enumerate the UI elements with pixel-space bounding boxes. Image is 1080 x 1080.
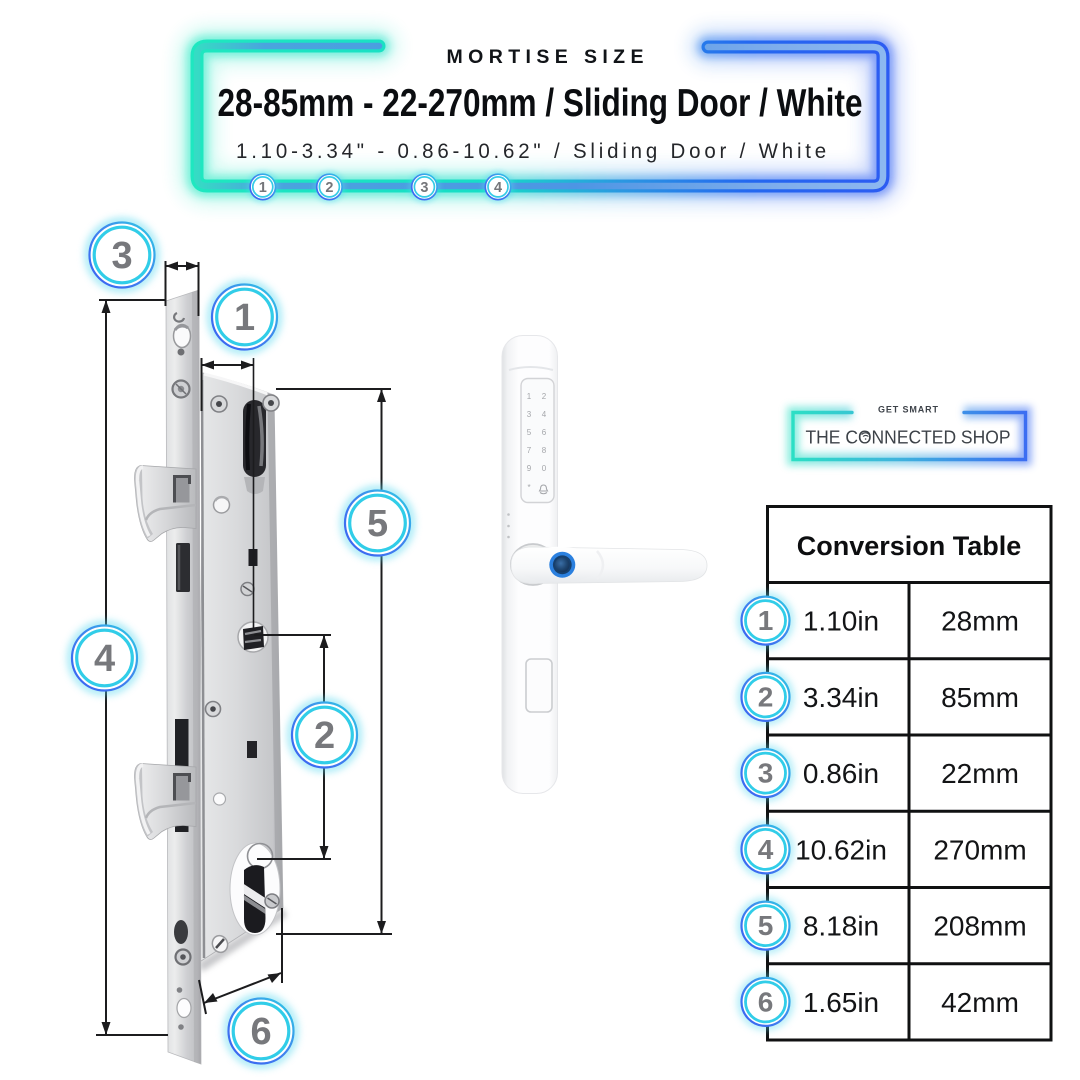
svg-text:1.10in: 1.10in [803, 606, 879, 637]
svg-text:28mm: 28mm [941, 606, 1019, 637]
svg-text:THE CONNECTED SHOP: THE CONNECTED SHOP [806, 427, 1011, 448]
svg-text:3: 3 [758, 758, 774, 789]
svg-text:MORTISE SIZE: MORTISE SIZE [447, 46, 644, 68]
svg-text:4: 4 [758, 834, 774, 865]
svg-text:2: 2 [325, 180, 333, 196]
svg-text:1: 1 [259, 180, 267, 196]
svg-text:5: 5 [367, 503, 388, 545]
svg-text:10.62in: 10.62in [795, 834, 887, 865]
svg-text:2: 2 [314, 715, 335, 757]
svg-text:6: 6 [758, 986, 774, 1017]
svg-text:4: 4 [94, 638, 115, 680]
svg-text:2: 2 [542, 392, 547, 401]
svg-text:9: 9 [527, 464, 532, 473]
svg-text:4: 4 [542, 410, 547, 419]
svg-text:2: 2 [758, 681, 774, 712]
svg-text:4: 4 [494, 180, 502, 196]
svg-text:42mm: 42mm [941, 987, 1019, 1018]
svg-text:*: * [527, 483, 530, 492]
svg-text:1.10-3.34" - 0.86-10.62" / Sli: 1.10-3.34" - 0.86-10.62" / Sliding Door … [236, 139, 830, 163]
svg-text:3.34in: 3.34in [803, 682, 879, 713]
svg-text:1: 1 [758, 605, 774, 636]
svg-text:6: 6 [250, 1011, 271, 1053]
svg-text:270mm: 270mm [933, 834, 1026, 865]
svg-text:1: 1 [527, 392, 532, 401]
svg-text:85mm: 85mm [941, 682, 1019, 713]
svg-text:5: 5 [527, 428, 532, 437]
svg-text:GET SMART: GET SMART [878, 405, 939, 415]
svg-text:3: 3 [527, 410, 532, 419]
svg-text:6: 6 [542, 428, 547, 437]
svg-text:1.65in: 1.65in [803, 987, 879, 1018]
svg-text:0.86in: 0.86in [803, 758, 879, 789]
svg-text:5: 5 [758, 910, 774, 941]
svg-text:0: 0 [542, 464, 547, 473]
svg-text:Conversion Table: Conversion Table [797, 531, 1022, 561]
svg-text:208mm: 208mm [933, 911, 1026, 942]
svg-text:1: 1 [234, 297, 255, 339]
svg-text:22mm: 22mm [941, 758, 1019, 789]
svg-text:8.18in: 8.18in [803, 911, 879, 942]
svg-text:7: 7 [527, 446, 532, 455]
svg-text:8: 8 [542, 446, 547, 455]
svg-text:28-85mm - 22-270mm / Sliding D: 28-85mm - 22-270mm / Sliding Door / Whit… [218, 82, 863, 125]
svg-text:3: 3 [420, 180, 428, 196]
svg-text:3: 3 [111, 235, 132, 277]
